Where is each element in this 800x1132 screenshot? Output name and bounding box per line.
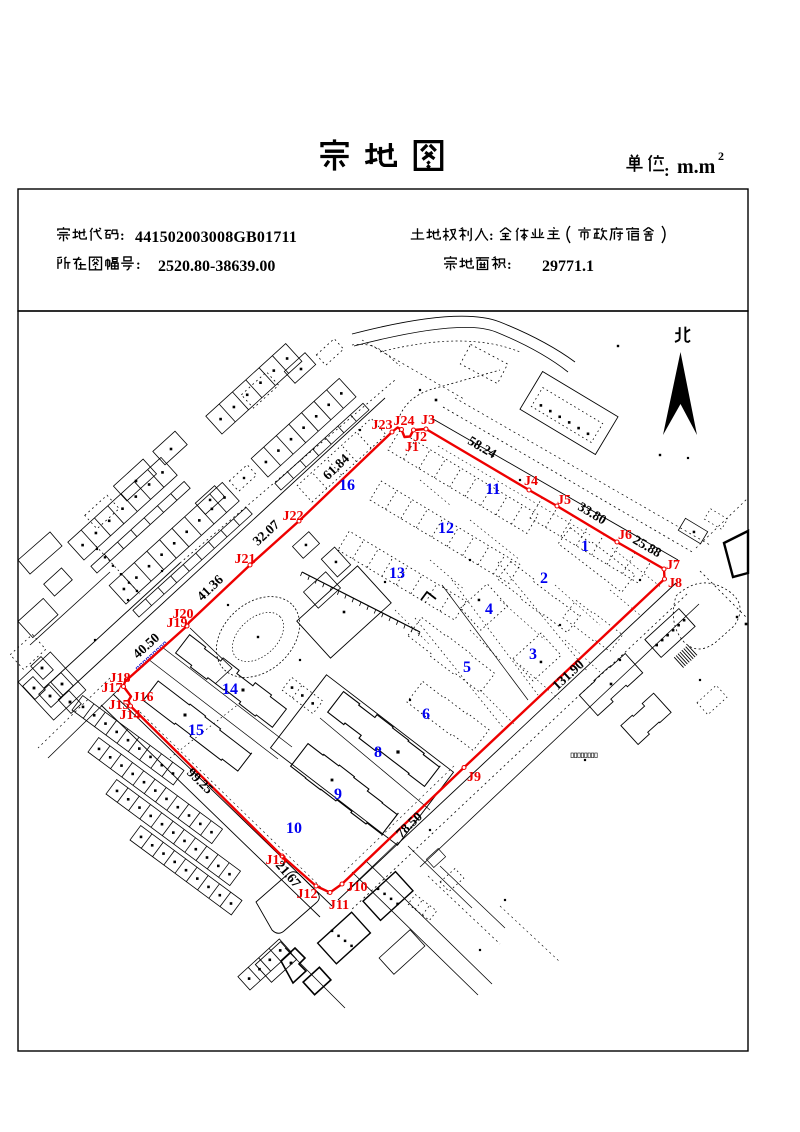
svg-text:10: 10 — [286, 820, 302, 837]
svg-text:33.80: 33.80 — [575, 499, 609, 528]
svg-text:14: 14 — [222, 681, 238, 698]
svg-text:2520.80-38639.00: 2520.80-38639.00 — [158, 258, 275, 275]
svg-text:15: 15 — [188, 722, 204, 739]
svg-text::: : — [489, 229, 494, 244]
svg-text:8: 8 — [374, 744, 382, 761]
svg-text:40.50: 40.50 — [130, 630, 163, 662]
svg-text:J21: J21 — [235, 552, 256, 567]
svg-text::: : — [664, 161, 670, 180]
svg-text:5: 5 — [463, 659, 471, 676]
svg-text:1: 1 — [581, 538, 589, 555]
svg-text:J7: J7 — [666, 558, 680, 573]
svg-text:J12: J12 — [297, 887, 318, 902]
svg-text:J5: J5 — [557, 493, 571, 508]
svg-text:J3: J3 — [421, 413, 435, 428]
svg-text:25.88: 25.88 — [630, 532, 664, 560]
svg-text:J16: J16 — [133, 690, 154, 705]
svg-text:9: 9 — [334, 786, 342, 803]
svg-text:21.67: 21.67 — [273, 858, 304, 891]
svg-text:J20: J20 — [173, 607, 194, 622]
svg-text:J6: J6 — [618, 528, 632, 543]
svg-text::: : — [507, 258, 512, 273]
svg-text:J22: J22 — [283, 509, 304, 524]
svg-text:99.25: 99.25 — [184, 765, 216, 797]
svg-text:4: 4 — [485, 601, 493, 618]
svg-text:J18: J18 — [110, 671, 131, 686]
svg-text:J4: J4 — [524, 474, 538, 489]
svg-text:J10: J10 — [347, 880, 368, 895]
svg-text:16: 16 — [339, 477, 355, 494]
svg-text:J24: J24 — [394, 414, 415, 429]
svg-text:J15: J15 — [109, 698, 130, 713]
svg-text:3: 3 — [529, 646, 537, 663]
svg-text:J23: J23 — [372, 418, 393, 433]
svg-text:J8: J8 — [668, 576, 682, 591]
svg-text:29771.1: 29771.1 — [542, 258, 594, 275]
svg-text:58.24: 58.24 — [465, 433, 499, 462]
svg-text:13: 13 — [389, 565, 405, 582]
svg-text:J9: J9 — [467, 770, 481, 785]
svg-text::: : — [136, 258, 141, 273]
svg-text:m.m: m.m — [677, 156, 716, 178]
svg-text::: : — [120, 229, 125, 244]
svg-text:131.90: 131.90 — [549, 656, 587, 692]
svg-text:6: 6 — [422, 706, 430, 723]
svg-text:2: 2 — [718, 149, 724, 163]
svg-text:41.36: 41.36 — [194, 572, 226, 604]
svg-text:32.07: 32.07 — [250, 517, 283, 549]
svg-text:441502003008GB01711: 441502003008GB01711 — [135, 229, 297, 246]
svg-text:11: 11 — [485, 481, 500, 498]
svg-text:12: 12 — [438, 520, 454, 537]
svg-text:2: 2 — [540, 570, 548, 587]
svg-text:J2: J2 — [413, 430, 427, 445]
svg-text:J11: J11 — [329, 898, 349, 913]
